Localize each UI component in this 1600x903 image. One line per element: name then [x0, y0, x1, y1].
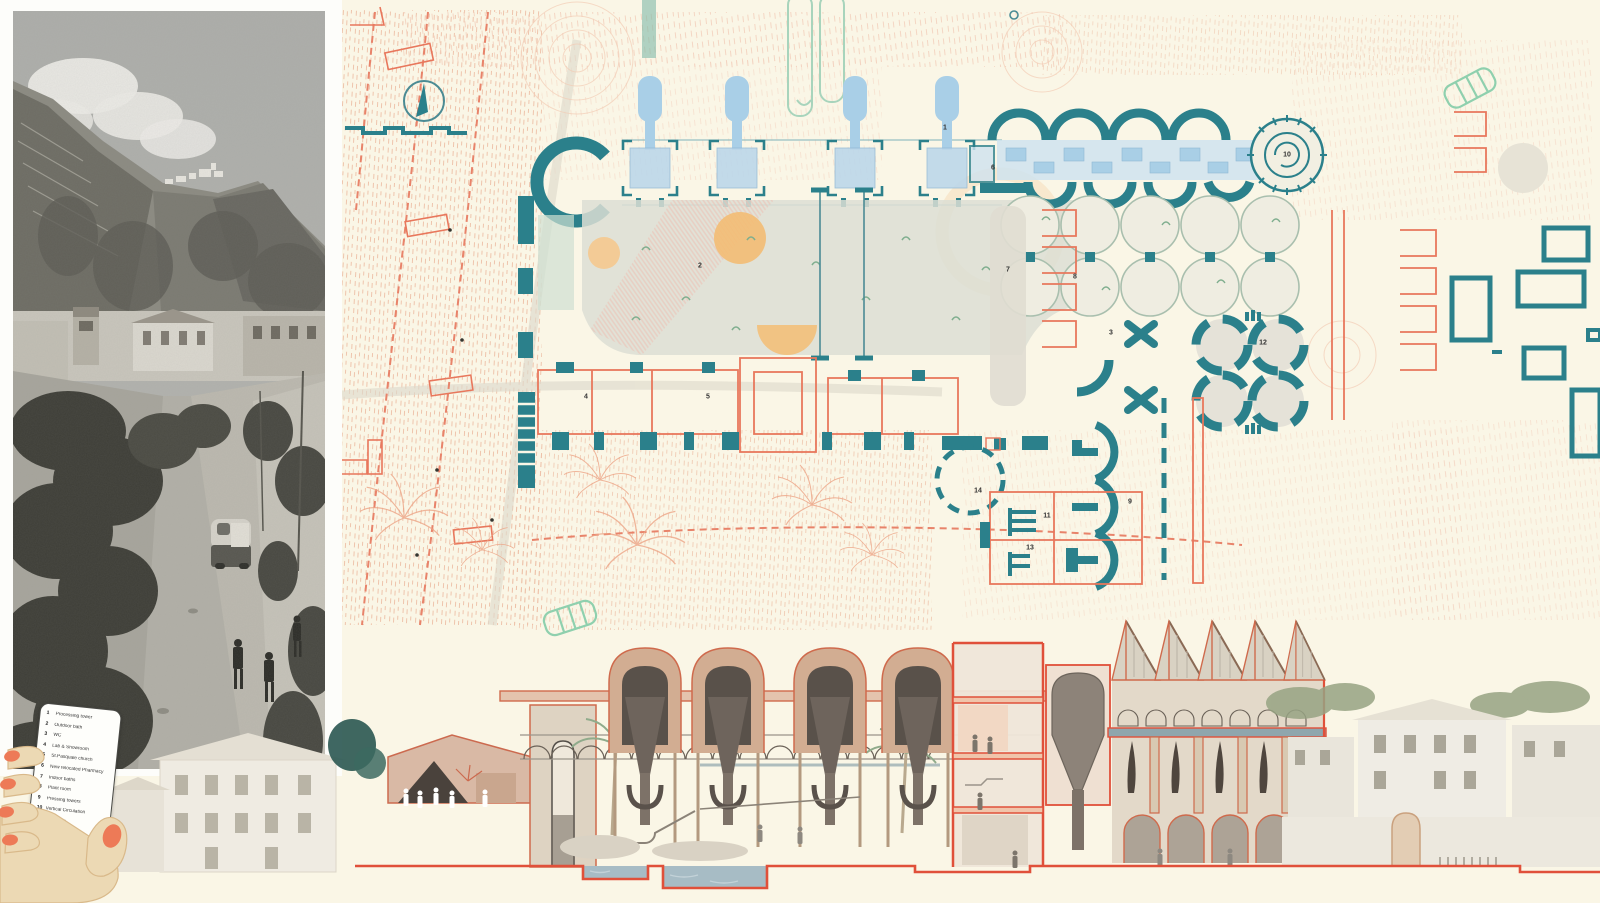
legend-item-label: Caldarium: [43, 828, 65, 835]
context-left: [106, 719, 532, 872]
legend-item-label: Pressing towers: [46, 796, 80, 805]
legend-item-label: Outdoor bath: [54, 722, 82, 730]
legend-item-label: Processing tower: [55, 712, 92, 721]
context-right: [1266, 681, 1600, 867]
silo: [1046, 665, 1110, 850]
indoor-baths-hall: [990, 206, 1026, 406]
site-plan: [342, 0, 1600, 660]
legend-item-label: Lab & Showroom: [52, 743, 89, 752]
legend-list: 1Processing tower 2Outdoor bath 3WC 4Lab…: [31, 710, 116, 866]
stairs: [560, 797, 860, 861]
section-render: [0, 585, 1600, 903]
caldarium-cluster: [1128, 310, 1304, 434]
pools: [583, 866, 767, 888]
legend-item-label: Changing room: [42, 838, 75, 846]
ground-cut-line: [355, 866, 1600, 888]
legend-item-label: Workshop: [44, 817, 66, 824]
presentation-board: 1 2 3 4 5 6 7 8 9 10 11 12 13 14: [0, 0, 1600, 903]
legend-item-label: WC: [53, 733, 61, 739]
machine-row: [970, 113, 1265, 204]
legend-item-label: Reception: [41, 849, 63, 856]
cut-building: [953, 643, 1043, 868]
legend-item-label: Indoor baths: [49, 775, 76, 783]
gear-room: [1247, 115, 1327, 195]
legend-item-label: Plant room: [47, 786, 71, 793]
legend-card: 1Processing tower 2Outdoor bath 3WC 4Lab…: [24, 702, 122, 872]
